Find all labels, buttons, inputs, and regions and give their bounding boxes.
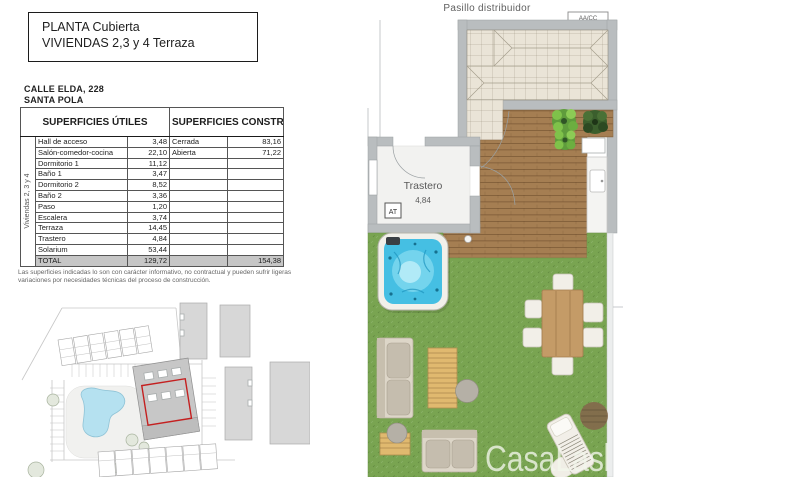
surfaces-table: SUPERFICIES ÚTILES SUPERFICIES CONSTRUID… — [20, 107, 284, 267]
building-notch — [248, 400, 252, 406]
table-row: Dormitorio 28,52 — [21, 180, 284, 191]
site-building-far-right — [270, 362, 310, 444]
sink — [590, 170, 605, 192]
total-useful: 129,72 — [128, 255, 170, 266]
row-value: 1,20 — [128, 201, 170, 212]
pouf — [387, 423, 407, 443]
table-row: Viviendas 2, 3 y 4 Hall de acceso3,48 Ce… — [21, 137, 284, 148]
built-value: 71,22 — [228, 147, 284, 158]
row-name: Solarium — [36, 244, 128, 255]
site-tree — [47, 394, 59, 406]
total-built: 154,38 — [228, 255, 284, 266]
table-header-row: SUPERFICIES ÚTILES SUPERFICIES CONSTRUID… — [21, 108, 284, 137]
corridor-outline — [368, 20, 380, 137]
outdoor-counter — [587, 157, 607, 233]
sofa-left — [377, 338, 413, 418]
antenna-box: AT — [385, 203, 401, 218]
building-notch — [180, 314, 184, 320]
plan-title-line2: VIVIENDAS 2,3 y 4 Terraza — [42, 35, 257, 51]
plant — [583, 110, 608, 134]
row-value: 14,45 — [128, 223, 170, 234]
ac-condenser-box — [582, 138, 605, 153]
dining-chair — [553, 274, 573, 291]
group-label-cell: Viviendas 2, 3 y 4 — [21, 137, 36, 267]
building-notch — [248, 380, 252, 386]
row-value: 53,44 — [128, 244, 170, 255]
sofa-bottom — [422, 430, 477, 472]
site-building-top-right-2 — [220, 305, 250, 357]
jacuzzi — [378, 233, 450, 313]
row-value: 3,48 — [128, 137, 170, 148]
row-value: 3,74 — [128, 212, 170, 223]
row-value: 3,47 — [128, 169, 170, 180]
row-value: 22,10 — [128, 147, 170, 158]
watermark-group: CasaLas — [485, 438, 612, 477]
row-name: Dormitorio 1 — [36, 158, 128, 169]
dining-chair — [583, 328, 603, 347]
row-name: Escalera — [36, 212, 128, 223]
table-row: Dormitorio 111,12 — [21, 158, 284, 169]
row-value: 8,52 — [128, 180, 170, 191]
table-row: Escalera3,74 — [21, 212, 284, 223]
row-name: Salón-comedor-cocina — [36, 147, 128, 158]
plan-title-line1: PLANTA Cubierta — [42, 19, 257, 35]
jacuzzi-control-panel — [386, 237, 400, 245]
row-name: Baño 2 — [36, 190, 128, 201]
address-street: CALLE ELDA, 228 — [24, 84, 104, 95]
row-name: Hall de acceso — [36, 137, 128, 148]
corridor-label: Pasillo distribuidor — [443, 3, 531, 14]
table-row: Trastero4,84 — [21, 234, 284, 245]
table-row: Baño 23,36 — [21, 190, 284, 201]
site-tree — [126, 434, 138, 446]
antenna-label: AT — [389, 209, 398, 216]
dining-chair — [552, 356, 573, 375]
site-tree — [28, 462, 44, 477]
group-label: Viviendas 2, 3 y 4 — [23, 174, 33, 229]
table-row: Baño 13,47 — [21, 169, 284, 180]
room-label: Trastero — [404, 180, 443, 192]
dining-table — [542, 290, 583, 357]
deck-fixture — [465, 236, 472, 243]
table-row: Paso1,20 — [21, 201, 284, 212]
built-header: SUPERFICIES CONSTRUIDAS — [170, 108, 284, 137]
row-name: Trastero — [36, 234, 128, 245]
plant — [552, 109, 578, 133]
useful-header: SUPERFICIES ÚTILES — [21, 108, 170, 137]
table-row: Terraza14,45 — [21, 223, 284, 234]
row-name: Dormitorio 2 — [36, 180, 128, 191]
room-area: 4,84 — [415, 196, 431, 205]
trastero-room: Trastero 4,84 AT — [368, 137, 480, 233]
row-value: 3,36 — [128, 190, 170, 201]
table-row: Salón-comedor-cocina22,10Abierta71,22 — [21, 147, 284, 158]
row-name: Terraza — [36, 223, 128, 234]
title-block: PLANTA Cubierta VIVIENDAS 2,3 y 4 Terraz… — [28, 12, 258, 62]
dining-chair — [525, 300, 542, 318]
building-notch — [180, 330, 184, 336]
plant — [555, 130, 576, 150]
disclaimer-text: Las superficies indicadas lo son con car… — [18, 269, 300, 285]
address-block: CALLE ELDA, 228 SANTA POLA — [24, 84, 104, 106]
dining-chair — [583, 303, 603, 322]
site-central-building — [133, 358, 200, 440]
roof-surface — [467, 30, 608, 100]
built-value: 83,16 — [228, 137, 284, 148]
coffee-table — [428, 348, 457, 408]
stair-landing — [467, 100, 503, 140]
row-name: Baño 1 — [36, 169, 128, 180]
built-name: Cerrada — [170, 137, 228, 148]
total-label: TOTAL — [36, 255, 128, 266]
watermark: CasaLas — [485, 438, 604, 477]
row-value: 11,12 — [128, 158, 170, 169]
pouf — [456, 380, 479, 403]
right-boundary-wall — [607, 233, 613, 477]
wall-niche — [369, 160, 377, 195]
site-plan — [20, 300, 310, 477]
site-row-houses-top — [58, 326, 152, 366]
address-city: SANTA POLA — [24, 95, 104, 106]
row-name: Paso — [36, 201, 128, 212]
row-value: 4,84 — [128, 234, 170, 245]
total-row: TOTAL 129,72 154,38 — [21, 255, 284, 266]
table-row: Solarium53,44 — [21, 244, 284, 255]
dining-chair — [523, 328, 542, 347]
built-name: Abierta — [170, 147, 228, 158]
floor-plan: Pasillo distribuidor AA/CC — [360, 0, 680, 477]
